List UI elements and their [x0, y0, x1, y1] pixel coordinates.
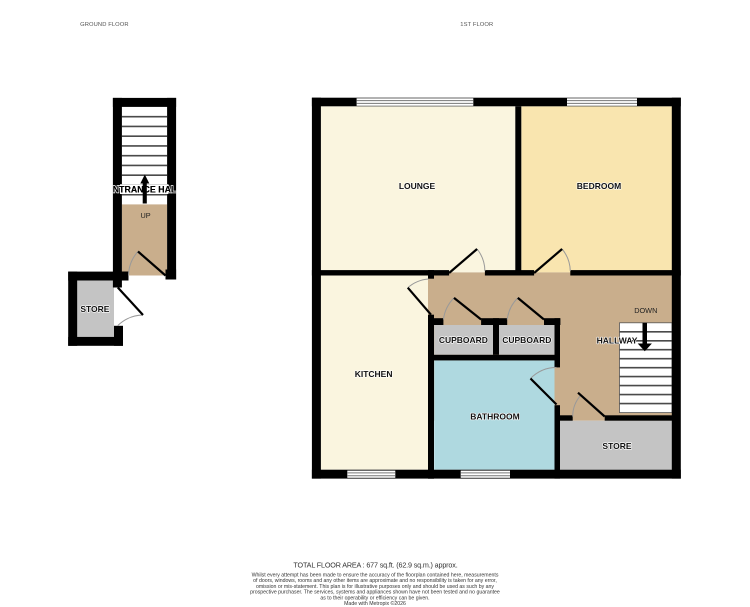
svg-text:Made with Metropix ©2026: Made with Metropix ©2026	[344, 600, 406, 607]
svg-text:STORE: STORE	[80, 304, 109, 314]
svg-text:BEDROOM: BEDROOM	[577, 181, 621, 191]
svg-text:UP: UP	[141, 211, 151, 220]
svg-text:1ST FLOOR: 1ST FLOOR	[460, 22, 493, 28]
svg-text:GROUND FLOOR: GROUND FLOOR	[80, 22, 129, 28]
svg-text:KITCHEN: KITCHEN	[355, 369, 393, 379]
svg-text:CUPBOARD: CUPBOARD	[439, 335, 488, 345]
svg-text:CUPBOARD: CUPBOARD	[502, 335, 551, 345]
svg-text:BATHROOM: BATHROOM	[470, 412, 519, 422]
svg-text:STORE: STORE	[602, 441, 631, 451]
svg-text:HALLWAY: HALLWAY	[597, 336, 638, 346]
svg-text:TOTAL FLOOR AREA : 677 sq.ft.: TOTAL FLOOR AREA : 677 sq.ft. (62.9 sq.m…	[293, 561, 457, 570]
svg-text:DOWN: DOWN	[634, 306, 657, 315]
svg-text:LOUNGE: LOUNGE	[399, 181, 436, 191]
